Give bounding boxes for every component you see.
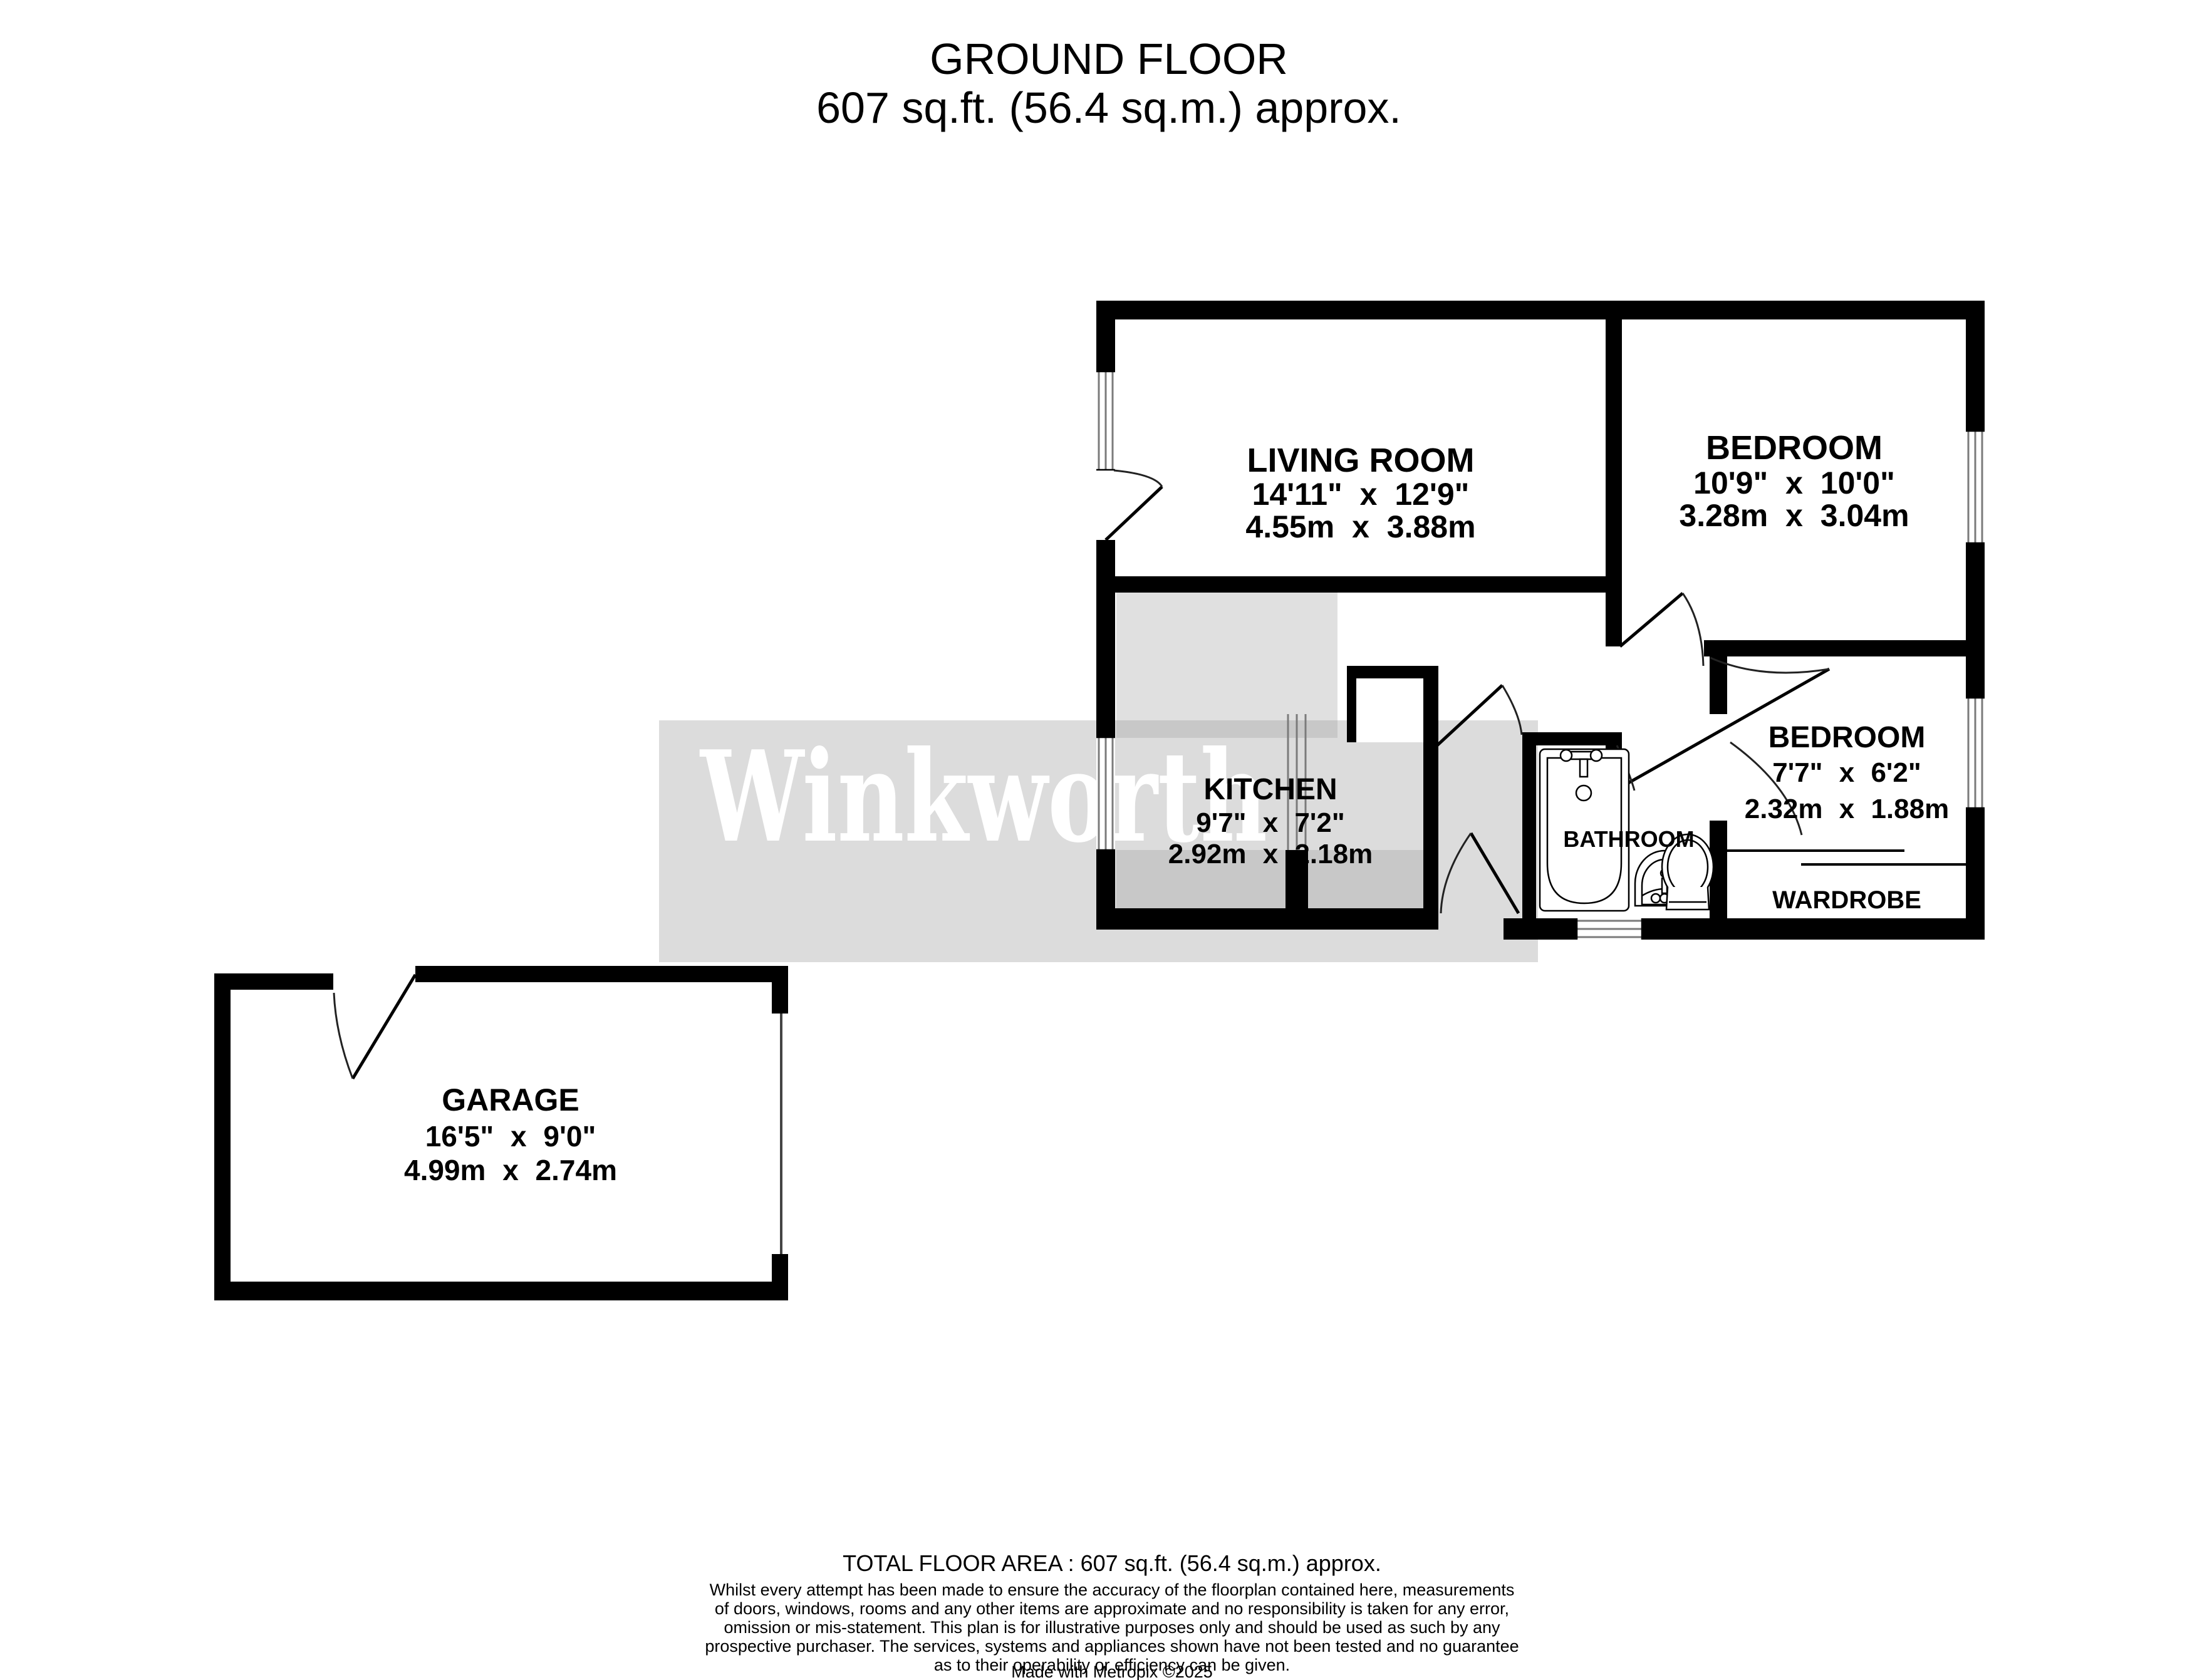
wall-bottom-right: [1642, 918, 1985, 940]
window-bedroom2: [1966, 698, 1985, 808]
bedroom1-name: BEDROOM: [1706, 429, 1883, 467]
bedroom1-label: BEDROOM 10'9" x 10'0" 3.28m x 3.04m: [1679, 429, 1909, 533]
disclaimer-line: omission or mis-statement. This plan is …: [724, 1618, 1500, 1637]
garage-side-door: [334, 975, 415, 1079]
wall-kitchen-right: [1423, 666, 1438, 930]
wall-bathroom-left: [1522, 745, 1536, 918]
living-room-label: LIVING ROOM 14'11" x 12'9" 4.55m x 3.88m: [1245, 442, 1475, 544]
kitchen-fill: [1116, 593, 1337, 722]
footer: TOTAL FLOOR AREA : 607 sq.ft. (56.4 sq.m…: [705, 1550, 1519, 1680]
door-living-room: [1106, 470, 1162, 540]
wall-kitchen-top: [1096, 576, 1622, 593]
garage-wall-right-bottom-stub: [772, 1254, 788, 1300]
page-title: GROUND FLOOR 607 sq.ft. (56.4 sq.m.) app…: [816, 34, 1401, 132]
living-room-name: LIVING ROOM: [1247, 442, 1475, 479]
bedroom1-metric: 3.28m x 3.04m: [1679, 498, 1909, 533]
garage-wall-left: [214, 973, 231, 1300]
wall-right-c: [1966, 808, 1985, 940]
metropix-credit: Made with Metropix ©2025: [1011, 1662, 1213, 1680]
garage-wall-top-right: [415, 966, 788, 982]
kitchen-cupboard-recess: [1356, 678, 1423, 742]
bedroom1-imperial: 10'9" x 10'0": [1693, 465, 1895, 500]
disclaimer-line: prospective purchaser. The services, sys…: [705, 1637, 1519, 1656]
wardrobe-name: WARDROBE: [1772, 886, 1921, 914]
wall-top: [1096, 301, 1985, 319]
wall-kitchen-bottom: [1096, 908, 1438, 930]
garage-wall-bottom: [214, 1282, 788, 1300]
bedroom2-metric: 2.32m x 1.88m: [1745, 794, 1949, 824]
wall-cupboard-left: [1347, 678, 1356, 742]
window-bedroom1: [1966, 431, 1985, 543]
bedroom2-label: BEDROOM 7'7" x 6'2" 2.32m x 1.88m: [1745, 721, 1949, 824]
window-bathroom: [1577, 918, 1642, 940]
wall-bottom-left: [1504, 918, 1577, 940]
title-line2: 607 sq.ft. (56.4 sq.m.) approx.: [816, 83, 1401, 132]
wall-bedroom1-bottom: [1704, 640, 1985, 656]
disclaimer-line: of doors, windows, rooms and any other i…: [715, 1599, 1509, 1618]
floorplan-page: Winkworth: [0, 0, 2197, 1680]
garage-imperial: 16'5" x 9'0": [425, 1120, 596, 1153]
wall-bedroom2-left-upper: [1710, 656, 1727, 714]
wall-left-b: [1096, 540, 1115, 737]
wall-right-b: [1966, 543, 1985, 698]
kitchen-metric: 2.92m x 2.18m: [1168, 839, 1373, 869]
garage-wall-top-left: [214, 973, 333, 990]
total-floor-area: TOTAL FLOOR AREA : 607 sq.ft. (56.4 sq.m…: [843, 1550, 1381, 1576]
bedroom2-imperial: 7'7" x 6'2": [1772, 757, 1921, 788]
garage-name: GARAGE: [442, 1082, 579, 1117]
wall-divider-upper: [1606, 319, 1622, 646]
garage-wall-right-top-stub: [772, 966, 788, 1014]
window-kitchen: [1096, 737, 1115, 850]
wall-right-a: [1966, 301, 1985, 431]
window-living-room: [1096, 371, 1115, 470]
bathroom-name: BATHROOM: [1563, 826, 1694, 852]
wardrobe-lines: [1727, 851, 1966, 864]
wall-left-c: [1096, 850, 1115, 930]
kitchen-name: KITCHEN: [1203, 773, 1337, 806]
living-room-imperial: 14'11" x 12'9": [1252, 477, 1470, 512]
living-room-metric: 4.55m x 3.88m: [1245, 509, 1475, 544]
title-line1: GROUND FLOOR: [930, 34, 1288, 83]
kitchen-imperial: 9'7" x 7'2": [1196, 807, 1344, 838]
disclaimer-line: Whilst every attempt has been made to en…: [710, 1580, 1515, 1599]
wall-left-a: [1096, 301, 1115, 371]
garage-label: GARAGE 16'5" x 9'0" 4.99m x 2.74m: [404, 1082, 617, 1186]
bedroom2-name: BEDROOM: [1769, 721, 1926, 754]
floorplan-canvas: Winkworth: [0, 0, 2197, 1680]
door-bedroom1: [1620, 593, 1703, 666]
garage-metric: 4.99m x 2.74m: [404, 1154, 617, 1186]
